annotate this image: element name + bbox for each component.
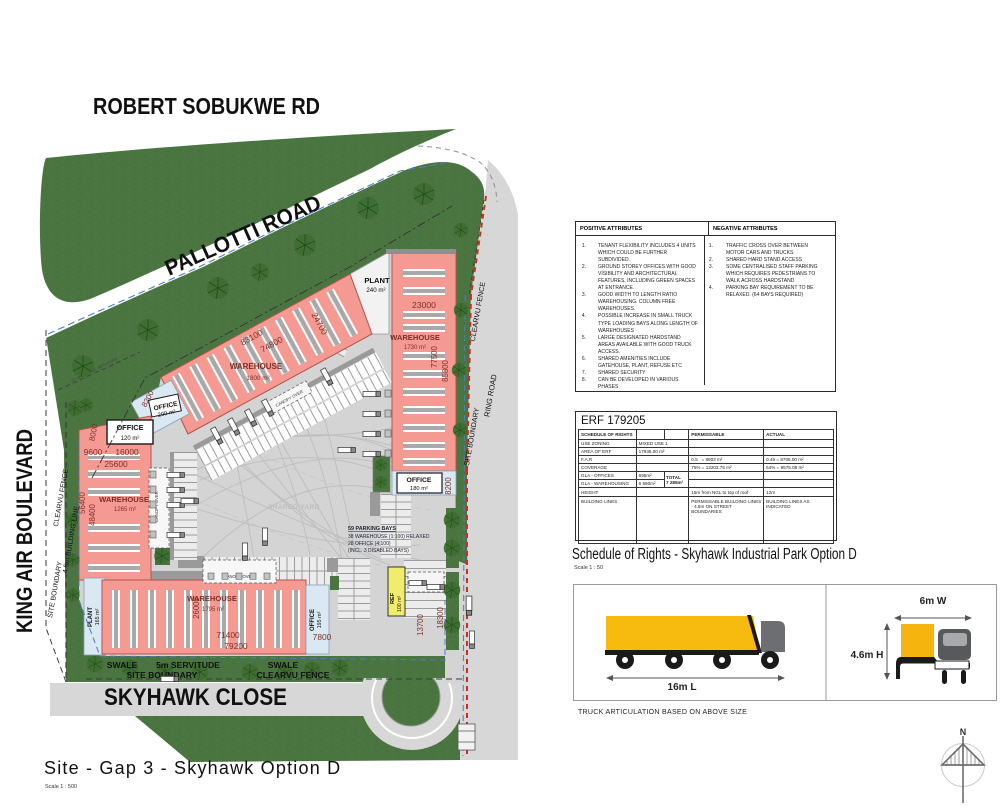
svg-text:PLANT: PLANT xyxy=(88,607,94,627)
svg-text:120 m²: 120 m² xyxy=(121,436,140,442)
svg-text:1800 m²: 1800 m² xyxy=(246,375,269,382)
svg-text:85800: 85800 xyxy=(441,359,450,381)
svg-text:16000: 16000 xyxy=(115,447,139,457)
svg-text:1730 m²: 1730 m² xyxy=(404,345,426,351)
svg-text:165 m²: 165 m² xyxy=(95,608,101,625)
svg-text:6m W: 6m W xyxy=(920,596,947,607)
svg-text:195 m²: 195 m² xyxy=(317,611,323,628)
svg-text:REF: REF xyxy=(390,592,396,604)
svg-text:ROBERT SOBUKWE RD: ROBERT SOBUKWE RD xyxy=(93,93,320,119)
svg-text:WAREHOUSE: WAREHOUSE xyxy=(99,495,149,504)
svg-text:4.6m H: 4.6m H xyxy=(851,650,884,661)
svg-text:25600: 25600 xyxy=(104,459,128,469)
svg-text:1795 m²: 1795 m² xyxy=(202,607,224,613)
svg-text:180 m²: 180 m² xyxy=(410,486,428,492)
svg-text:5m SERVITUDE: 5m SERVITUDE xyxy=(156,660,220,670)
svg-text:48400: 48400 xyxy=(88,503,97,525)
svg-text:OFFICE: OFFICE xyxy=(310,609,316,631)
svg-text:77500: 77500 xyxy=(430,345,439,367)
svg-text:OFFICE: OFFICE xyxy=(407,477,432,484)
svg-text:SWALE: SWALE xyxy=(107,660,138,670)
svg-text:N: N xyxy=(960,727,967,737)
svg-text:28 OFFICE (4:100): 28 OFFICE (4:100) xyxy=(348,541,391,547)
svg-text:13700: 13700 xyxy=(416,613,425,635)
svg-text:18300: 18300 xyxy=(436,606,445,628)
svg-text:100 m²: 100 m² xyxy=(397,596,403,612)
svg-text:26000: 26000 xyxy=(192,596,201,618)
svg-text:71400: 71400 xyxy=(216,630,240,640)
svg-text:240 m²: 240 m² xyxy=(366,287,385,294)
svg-text:KING AIR BOULEVARD: KING AIR BOULEVARD xyxy=(12,429,37,633)
svg-text:23000: 23000 xyxy=(412,300,436,310)
svg-text:79200: 79200 xyxy=(224,641,248,651)
svg-text:SKYHAWK CLOSE: SKYHAWK CLOSE xyxy=(104,684,287,711)
svg-text:WAREHOUSE: WAREHOUSE xyxy=(230,362,283,371)
svg-text:SITE BOUNDARY: SITE BOUNDARY xyxy=(47,561,64,619)
svg-text:1265 m²: 1265 m² xyxy=(114,507,136,513)
svg-text:WAREHOUSE: WAREHOUSE xyxy=(390,333,440,342)
svg-text:16m L: 16m L xyxy=(668,682,697,693)
svg-text:(INCL. 3 DISABLED BAYS): (INCL. 3 DISABLED BAYS) xyxy=(348,548,409,554)
svg-text:SHARED YARD: SHARED YARD xyxy=(268,504,320,511)
svg-text:9600: 9600 xyxy=(84,447,103,457)
svg-text:SWALE: SWALE xyxy=(268,660,299,670)
svg-text:PLANT: PLANT xyxy=(364,276,390,285)
svg-text:38 WAREHOUSE (1:100) RELAXED: 38 WAREHOUSE (1:100) RELAXED xyxy=(348,534,430,540)
svg-text:59 PARKING BAYS: 59 PARKING BAYS xyxy=(348,526,396,532)
svg-text:8200: 8200 xyxy=(444,477,453,495)
svg-text:OFFICE: OFFICE xyxy=(116,423,143,432)
svg-text:7800: 7800 xyxy=(313,632,332,642)
svg-text:CLEARVU FENCE: CLEARVU FENCE xyxy=(257,670,330,680)
